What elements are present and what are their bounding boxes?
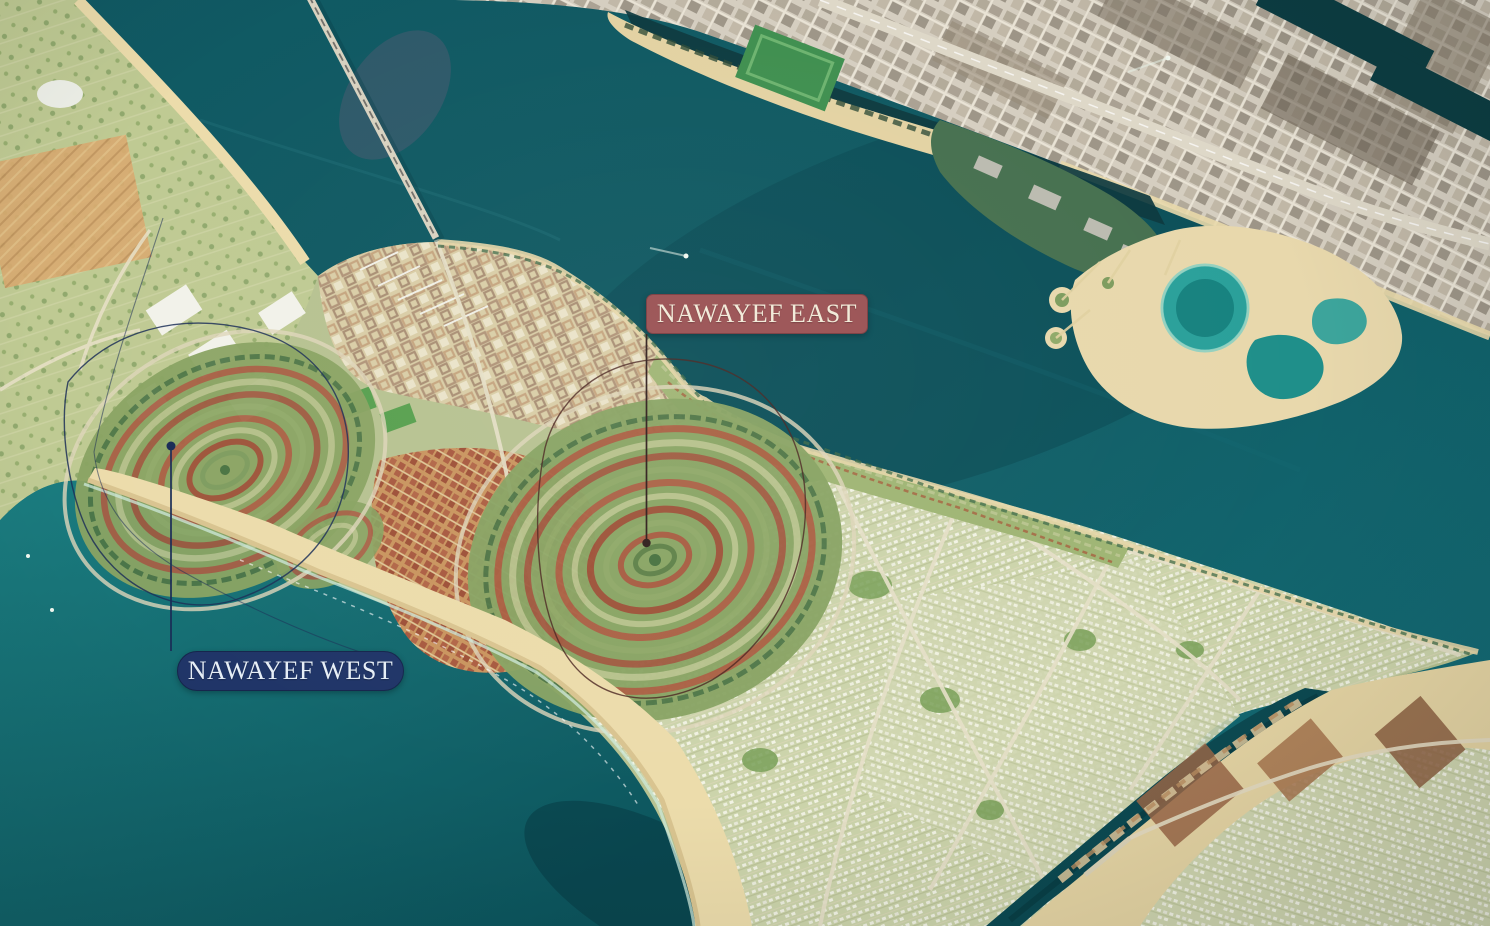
map-artwork	[0, 0, 1490, 926]
nawayef-east-label: NAWAYEF EAST	[646, 294, 868, 334]
nawayef-east-label-text: NAWAYEF EAST	[657, 299, 857, 329]
satellite-map: NAWAYEF EAST NAWAYEF WEST	[0, 0, 1490, 926]
nawayef-west-anchor-dot	[167, 442, 176, 451]
nawayef-west-label: NAWAYEF WEST	[177, 651, 404, 691]
nawayef-east-anchor-dot	[642, 539, 650, 547]
nawayef-west-label-text: NAWAYEF WEST	[188, 656, 393, 686]
stadium	[37, 80, 83, 108]
